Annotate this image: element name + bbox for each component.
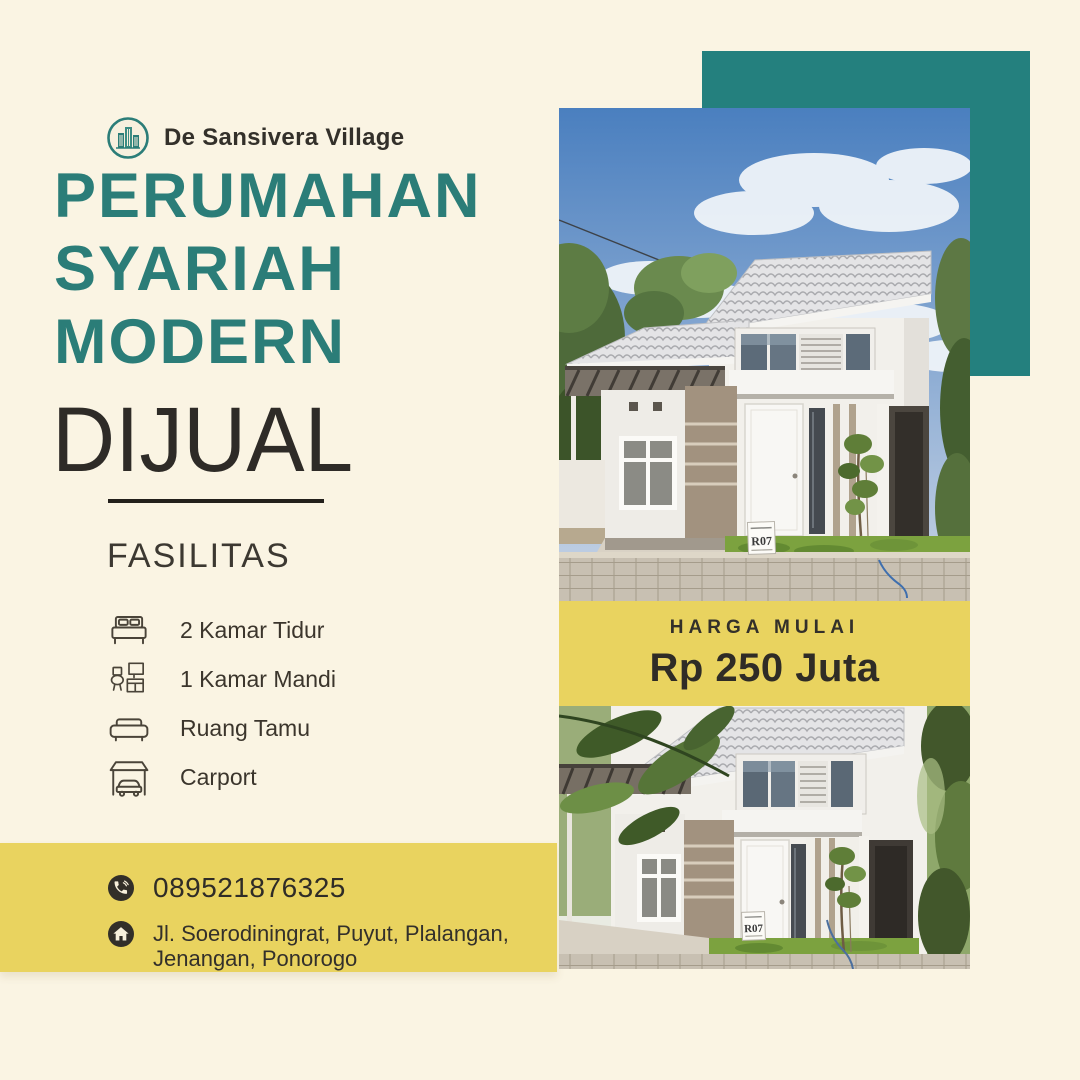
facility-item-carport: Carport — [106, 753, 336, 802]
door-sidelight — [791, 844, 806, 952]
headline-line-1: PERUMAHAN — [54, 160, 482, 233]
headline-line-3: MODERN — [54, 306, 482, 379]
house-photo-bottom: R07 — [559, 706, 970, 969]
door-sidelight — [809, 408, 825, 534]
divider-line — [108, 499, 324, 503]
sign-label: R07 — [751, 534, 772, 549]
address-text: Jl. Soerodiningrat, Puyut, Plalangan, Je… — [153, 921, 509, 971]
headline: PERUMAHAN SYARIAH MODERN — [54, 160, 482, 379]
headline-subline: DIJUAL — [52, 388, 353, 493]
phone-row: 089521876325 — [108, 872, 346, 904]
facility-item-bathroom: 1 Kamar Mandi — [106, 655, 336, 704]
contact-box: 089521876325 Jl. Soerodiningrat, Puyut, … — [0, 843, 557, 972]
sofa-icon — [106, 707, 152, 751]
sign-label: R07 — [744, 923, 764, 936]
facility-label: Ruang Tamu — [180, 715, 310, 742]
accent-wall — [685, 386, 737, 540]
facilities-title: FASILITAS — [107, 537, 291, 576]
home-icon — [108, 921, 134, 947]
address-line-1: Jl. Soerodiningrat, Puyut, Plalangan, — [153, 921, 509, 946]
facility-label: 1 Kamar Mandi — [180, 666, 336, 693]
house-number-sign: R07 — [747, 522, 775, 555]
brand-logo-buildings-icon — [106, 116, 150, 160]
upper-window-band — [736, 754, 866, 814]
address-line-2: Jenangan, Ponorogo — [153, 946, 357, 971]
accent-wall — [684, 820, 734, 944]
price-label: HARGA MULAI — [670, 617, 859, 639]
bed-icon — [106, 609, 152, 653]
phone-number: 089521876325 — [153, 872, 346, 904]
facilities-list: 2 Kamar Tidur 1 Kamar Mandi — [106, 606, 336, 802]
price-band: HARGA MULAI Rp 250 Juta — [559, 601, 970, 706]
entry-canopy — [729, 370, 894, 396]
bathroom-icon — [106, 658, 152, 702]
price-value: Rp 250 Juta — [649, 646, 879, 691]
carport-icon — [106, 756, 152, 800]
house-photo-top: R07 — [559, 108, 970, 601]
facility-item-bedroom: 2 Kamar Tidur — [106, 606, 336, 655]
second-entry — [859, 836, 913, 954]
phone-icon — [108, 875, 134, 901]
facility-label: 2 Kamar Tidur — [180, 617, 324, 644]
house-number-sign: R07 — [742, 912, 766, 941]
facility-item-livingroom: Ruang Tamu — [106, 704, 336, 753]
facility-label: Carport — [180, 764, 257, 791]
paving — [559, 558, 970, 601]
front-door — [745, 404, 803, 536]
second-entry — [877, 404, 929, 536]
entry-canopy — [722, 810, 862, 834]
brand-header: De Sansivera Village — [106, 116, 404, 160]
flyer-canvas: De Sansivera Village PERUMAHAN SYARIAH M… — [0, 0, 1080, 1080]
paving — [559, 954, 970, 969]
headline-line-2: SYARIAH — [54, 233, 482, 306]
address-row: Jl. Soerodiningrat, Puyut, Plalangan, Je… — [108, 921, 509, 971]
brand-name: De Sansivera Village — [164, 124, 404, 152]
